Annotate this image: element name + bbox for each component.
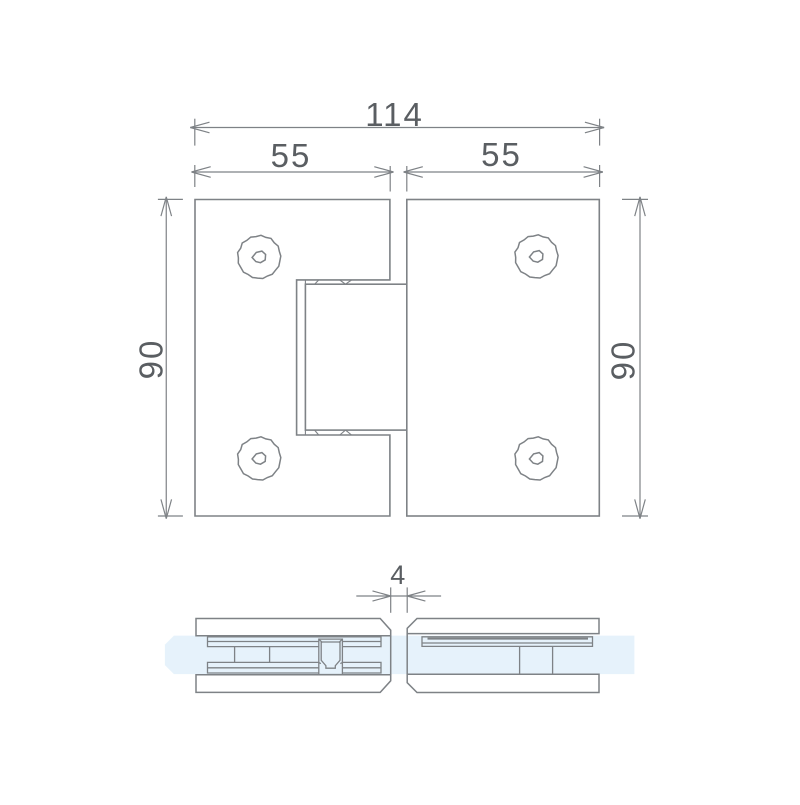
svg-text:114: 114	[365, 96, 424, 133]
svg-text:90: 90	[605, 340, 642, 381]
svg-text:90: 90	[133, 339, 170, 380]
svg-text:55: 55	[481, 136, 522, 173]
svg-text:55: 55	[271, 137, 312, 174]
svg-text:4: 4	[390, 560, 405, 590]
